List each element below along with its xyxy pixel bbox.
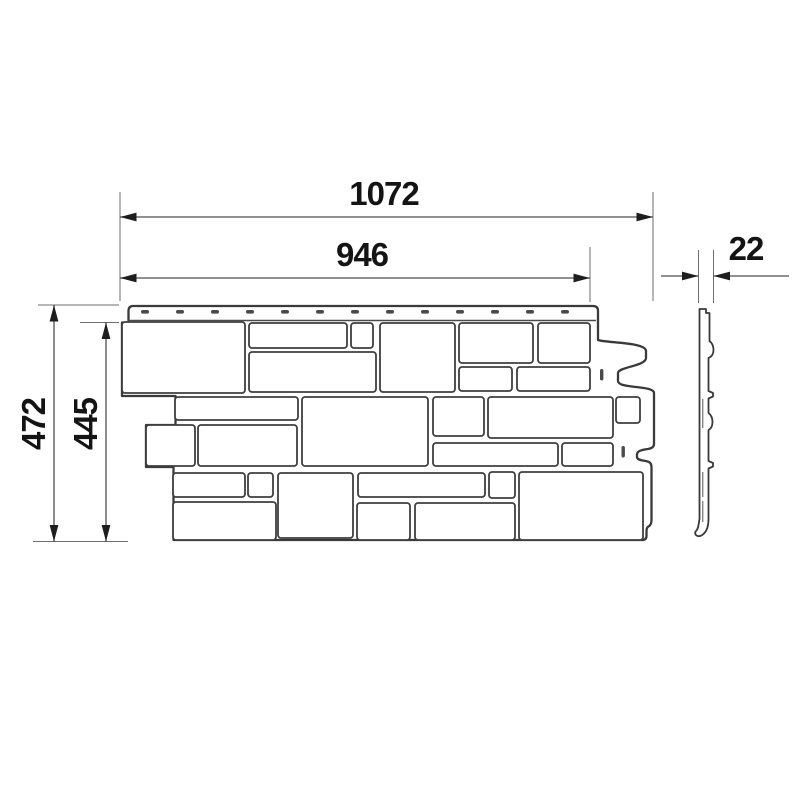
stone-block <box>358 473 485 497</box>
stone-block <box>459 323 533 363</box>
stone-block <box>146 425 195 466</box>
dimension-thickness: 22 <box>661 230 789 303</box>
stone-block <box>351 323 373 348</box>
side-profile-outline <box>695 309 713 536</box>
panel-side-view <box>695 309 713 536</box>
stone-block <box>459 367 512 391</box>
stone-block <box>415 503 515 540</box>
stone-block <box>249 323 347 348</box>
stone-block <box>173 473 245 497</box>
dimension-exposed-height: 445 <box>67 323 119 542</box>
dimension-label-exposed-height: 445 <box>67 397 104 450</box>
stone-blocks <box>122 322 643 540</box>
stone-block <box>173 502 276 540</box>
stone-block <box>562 443 613 466</box>
facade-panel-drawing: 1072 946 22 472 445 <box>0 0 800 800</box>
stone-block <box>249 352 376 392</box>
stone-block <box>489 472 515 498</box>
stone-block <box>538 323 590 363</box>
stone-block <box>302 397 428 466</box>
stone-block <box>616 397 640 423</box>
stone-block <box>517 367 590 391</box>
dimension-label-thickness: 22 <box>729 230 764 267</box>
stone-block <box>519 472 643 540</box>
stone-block <box>488 397 613 438</box>
dimension-label-overall-height: 472 <box>15 397 52 450</box>
dimension-exposed-width: 946 <box>120 236 590 302</box>
stone-block <box>278 473 353 538</box>
stone-block <box>380 323 455 392</box>
stone-block <box>248 473 273 497</box>
stone-block <box>122 322 245 393</box>
dimension-label-overall-width: 1072 <box>349 175 419 212</box>
stone-block <box>198 425 297 466</box>
stone-block <box>433 443 558 466</box>
panel-front-view <box>122 306 654 540</box>
stone-block <box>357 503 410 540</box>
stone-block <box>433 397 484 436</box>
dimension-label-exposed-width: 946 <box>336 236 389 273</box>
stone-block <box>175 397 298 420</box>
technical-drawing-page: 1072 946 22 472 445 <box>0 0 800 800</box>
